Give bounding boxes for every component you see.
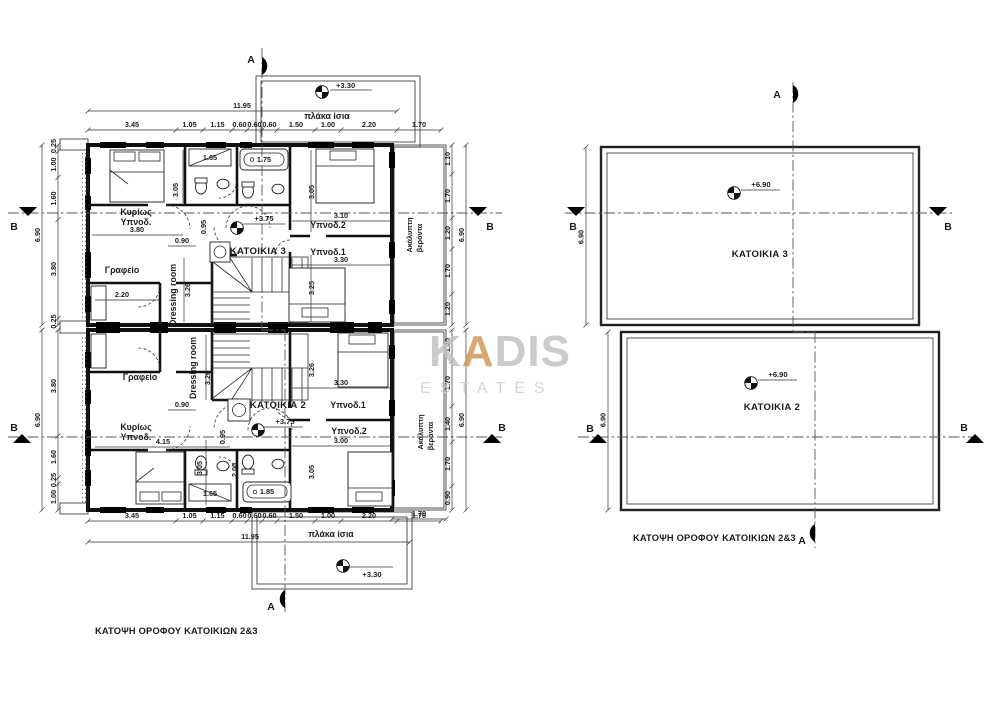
dim-right-bot-2: 1.40 (443, 417, 452, 431)
dim-left-top-0: 0.25 (49, 139, 58, 153)
bed-master-unit2 (136, 452, 184, 504)
level-symbol-roof2 (745, 377, 758, 390)
level-symbol-balcony-bottom (337, 560, 350, 573)
dim-top-9: 1.70 (412, 120, 426, 129)
roof2-height: 6.90 (599, 413, 608, 427)
bedroom1-h-u3: 3.25 (307, 281, 316, 295)
bedroom2-label-u3: Υπνοδ.2 (310, 220, 346, 230)
bedroom2-h-u2: 3.05 (307, 465, 316, 479)
dim-right-bot-4: 0.90 (443, 491, 452, 505)
section-b-arrow-4 (483, 434, 501, 443)
roof-unit2-name: ΚΑΤΟΙΚΙΑ 2 (744, 402, 800, 413)
level-symbol-unit3 (231, 222, 244, 235)
bathtub-dim-u2: 1.85 (260, 487, 274, 496)
dim-left-bot-2: 0.25 (49, 473, 58, 487)
unit2-name: ΚΑΤΟΙΚΙΑ 2 (250, 400, 306, 411)
section-a-letter-bottom-right: A (798, 535, 806, 547)
office-label-u3: Γραφείο (105, 265, 140, 275)
dim-top-5: 0.60 (262, 120, 276, 129)
dim-left-top-2: 1.60 (49, 191, 58, 205)
caption-right: ΚΑΤΟΨΗ ΟΡΟΦΟΥ ΚΑΤΟΙΚΙΩΝ 2&3 (633, 533, 796, 543)
section-a-letter-top-right: A (773, 89, 781, 101)
section-b-arrow-7 (589, 434, 607, 443)
dressing-dim-u2: 3.26 (203, 371, 212, 385)
dim-left-top-4: 0.25 (49, 314, 58, 328)
bathtub-dim-u3: 1.75 (257, 155, 271, 164)
dim-bot-8: 2.20 (362, 511, 376, 520)
section-b-letter-1: B (10, 221, 18, 233)
section-b-arrow-1 (19, 207, 37, 216)
overall-height-bot-right: 6.90 (457, 413, 466, 427)
watermark-dis: DIS (495, 327, 571, 376)
bed-bedroom2-unit3 (316, 149, 374, 203)
level-text-balcony-bottom: +3.30 (362, 570, 381, 579)
bedroom2-label-u2: Υπνοδ.2 (331, 426, 367, 436)
overall-width-top: 11.95 (233, 101, 251, 110)
caption-left: ΚΑΤΟΨΗ ΟΡΟΦΟΥ ΚΑΤΟΙΚΙΩΝ 2&3 (95, 626, 258, 636)
watermark-subtitle: ESTATES (420, 380, 554, 397)
dressing-label-u2: Dressing room (188, 337, 198, 399)
level-text-unit2: +3.75 (275, 417, 295, 426)
dim-top-1: 1.05 (182, 120, 196, 129)
dressing-dim-u3: 3.26 (183, 283, 192, 297)
watermark-a-accent: A (462, 327, 495, 376)
section-b-letter-4: B (498, 422, 506, 434)
balcony-outline-bottom (252, 512, 412, 589)
hatch-corner-bottom (60, 503, 88, 514)
entry-dim-u2: 0.95 (218, 430, 227, 444)
section-b-arrow-6 (929, 207, 947, 216)
veranda-label2-u2: βεράντα (426, 421, 435, 450)
washing-machine-unit2 (228, 399, 250, 421)
bedroom2-w-u2: 3.00 (334, 436, 348, 445)
section-b-arrow-2 (469, 207, 487, 216)
dim-top-8: 2.20 (362, 120, 376, 129)
level-text-balcony-top: +3.30 (336, 81, 355, 90)
veranda-width-dim: 1.70 (412, 509, 426, 518)
dim-top-4: 0.60 (247, 120, 261, 129)
roof-unit3-name: ΚΑΤΟΙΚΙΑ 3 (732, 249, 788, 260)
veranda-label2-u3: βεράντα (415, 223, 424, 252)
level-text-roof2: +6.90 (768, 370, 787, 379)
unit2-floor-plan (60, 327, 446, 589)
washing-machine-unit3 (210, 242, 230, 262)
master-label1-u2: Κυρίως (120, 422, 152, 432)
desk-unit2 (91, 334, 106, 368)
bedroom1-label-u2: Υπνοδ.1 (330, 400, 366, 410)
shower-len-u2: 2.00 (230, 463, 239, 477)
level-symbol-unit2 (252, 424, 265, 437)
dim-left-bot-0: 3.80 (49, 379, 58, 393)
dim-right-top-3: 1.70 (443, 264, 452, 278)
section-b-letter-3: B (10, 422, 18, 434)
master-dim-u2: 4.15 (156, 437, 170, 446)
unit3-name: ΚΑΤΟΙΚΙΑ 3 (230, 246, 286, 257)
bedroom1-h-u2: 3.26 (307, 363, 316, 377)
dim-bot-5: 0.60 (262, 511, 276, 520)
dressing-label-u3: Dressing room (168, 264, 178, 326)
dim-bot-6: 1.50 (289, 511, 303, 520)
dim-left-top-3: 3.80 (49, 262, 58, 276)
veranda-label1-u3: Ακάλυπτη (405, 217, 414, 252)
section-a-letter-bottom-left: A (267, 601, 275, 613)
level-symbol-balcony-top (316, 86, 329, 99)
dim-right-top-0: 1.10 (443, 152, 452, 166)
corridor-dim-u2: 0.90 (175, 400, 189, 409)
master-label2-u2: Υπνοδ. (121, 432, 152, 442)
bath-len-u2: 3.05 (195, 461, 204, 475)
dim-right-top-1: 1.70 (443, 189, 452, 203)
bed-bedroom1-unit3 (289, 268, 345, 322)
overall-width-bottom: 11.95 (241, 532, 259, 541)
veranda-label1-u2: Ακάλυπτη (416, 414, 425, 449)
level-text-roof3: +6.90 (751, 180, 770, 189)
roof-plan-unit2 (621, 332, 939, 510)
desk-unit3 (91, 286, 106, 320)
bed-bedroom2-unit2 (348, 452, 392, 506)
master-label1-u3: Κυρίως (120, 207, 152, 217)
dim-bot-1: 1.05 (182, 511, 196, 520)
hatch-corner-mid (60, 321, 88, 333)
section-a-letter-top-left: A (247, 54, 255, 66)
dim-left-bot-1: 1.60 (49, 450, 58, 464)
dim-top-2: 1.15 (210, 120, 224, 129)
dim-bot-7: 1.00 (321, 511, 335, 520)
hatch-corner-top (60, 139, 88, 150)
dim-right-bot-3: 1.70 (443, 457, 452, 471)
dim-top-7: 1.00 (321, 120, 335, 129)
insulation-strip-unit2 (82, 336, 87, 504)
bedroom2-w-u3: 3.10 (334, 211, 348, 220)
dim-top-0: 3.45 (125, 120, 139, 129)
roof3-height: 6.90 (577, 230, 586, 244)
entry-dim-u3: 0.95 (199, 220, 208, 234)
section-b-arrow-5 (567, 207, 585, 216)
bedroom1-w-u3: 3.30 (334, 255, 348, 264)
dim-bot-3: 0.60 (232, 511, 246, 520)
slab-label-bottom: πλάκα ίσια (308, 529, 354, 539)
dim-bot-0: 3.45 (125, 511, 139, 520)
section-a-flag-bottom-left (280, 590, 285, 608)
section-b-arrow-3 (13, 434, 31, 443)
section-b-letter-6: B (944, 221, 952, 233)
watermark-wordmark: KADIS (429, 327, 571, 376)
level-text-unit3: +3.75 (254, 214, 274, 223)
office-dim-u3: 2.20 (115, 290, 129, 299)
office-label-u2: Γραφείο (123, 372, 158, 382)
shower-dim-u2: 1.65 (203, 489, 217, 498)
shower-dim-u3: 1.65 (203, 153, 217, 162)
dim-top-6: 1.50 (289, 120, 303, 129)
section-a-flag-bottom-right (810, 524, 815, 542)
section-b-letter-7: B (586, 423, 594, 435)
section-b-arrow-8 (966, 434, 984, 443)
dim-right-top-4: 1.20 (443, 302, 452, 316)
master-dim-u3: 3.80 (130, 225, 144, 234)
section-a-flag-top-right (793, 85, 798, 103)
dim-top-3: 0.60 (232, 120, 246, 129)
dim-right-top-2: 1.20 (443, 226, 452, 240)
watermark-logo: KADIS ESTATES (420, 327, 571, 397)
bed-master-unit3 (110, 150, 164, 202)
overall-height-bot-left: 6.90 (33, 413, 42, 427)
section-b-letter-8: B (960, 422, 968, 434)
overall-height-top-left: 6.90 (33, 228, 42, 242)
level-symbol-roof3 (728, 187, 741, 200)
dim-left-top-1: 1.00 (49, 157, 58, 171)
section-a-flag-top-left (262, 57, 267, 75)
floor-plan-drawing: A +3.30 πλάκα ίσια 11.95 3.45 1.05 1.15 … (0, 0, 992, 727)
bath-len-u3: 3.05 (171, 183, 180, 197)
section-b-letter-5: B (569, 221, 577, 233)
bedroom1-w-u2: 3.30 (334, 378, 348, 387)
watermark-k: K (429, 327, 462, 376)
overall-height-top-right: 6.90 (457, 228, 466, 242)
corridor-dim-u3: 0.90 (175, 236, 189, 245)
roof-plan-unit3 (601, 147, 919, 325)
dim-bot-2: 1.15 (210, 511, 224, 520)
insulation-strip-unit3 (82, 153, 87, 319)
bedroom2-h-u3: 3.05 (307, 185, 316, 199)
dim-bot-4: 0.60 (247, 511, 261, 520)
dim-left-bot-3: 1.00 (49, 490, 58, 504)
section-b-letter-2: B (486, 221, 494, 233)
